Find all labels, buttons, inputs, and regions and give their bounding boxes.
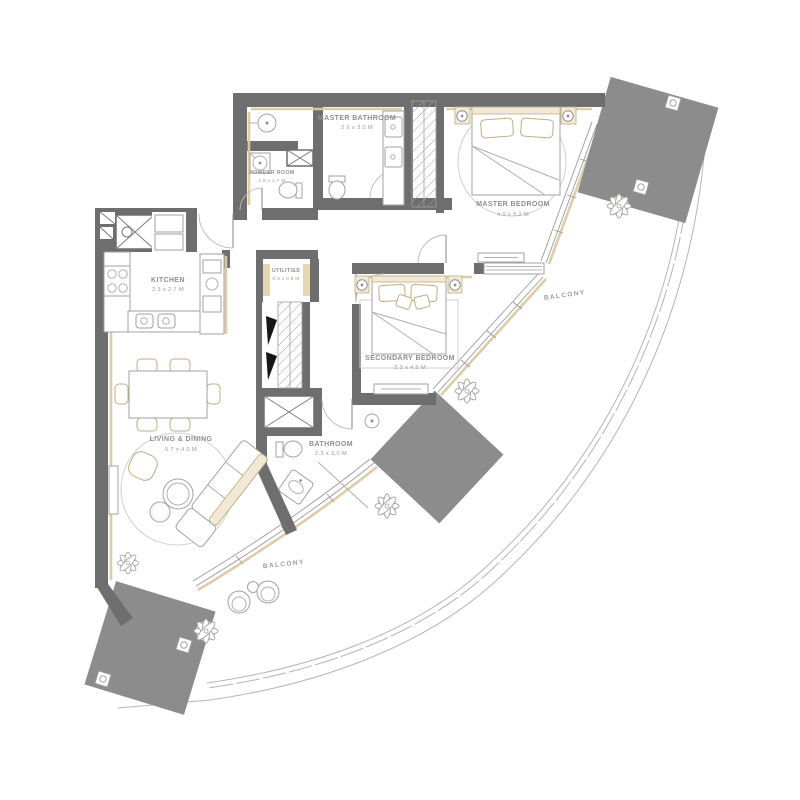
room-label-secondary-bedroom: SECONDARY BEDROOM <box>365 355 455 362</box>
room-dims-powder-room: 1.5 x 1.7 M <box>258 178 285 184</box>
lamp-icon <box>357 280 367 290</box>
balcony-chair-icon <box>228 591 250 613</box>
bathroom-door <box>322 399 352 429</box>
bed-icon <box>372 276 446 354</box>
room-label-utilities: UTILITIES <box>272 268 300 274</box>
room-label-balcony-bottom: BALCONY <box>263 559 305 570</box>
downlight-icon <box>633 179 649 195</box>
plant-icon <box>607 194 631 218</box>
sink-icon <box>158 314 175 328</box>
fridge-icon <box>155 215 183 232</box>
room-label-bathroom: BATHROOM <box>309 441 353 448</box>
plant-icon <box>194 619 218 643</box>
tv-console-icon <box>109 466 118 514</box>
toilet-icon <box>329 176 345 199</box>
lamp-icon <box>563 111 573 121</box>
floor-plan-page: MASTER BATHROOM 2.6 x 3.0 M POWDER ROOM … <box>0 0 800 800</box>
toilet-icon <box>279 182 302 198</box>
room-dims-bathroom: 2.3 x 3.0 M <box>315 451 347 457</box>
side-table-icon <box>150 502 170 522</box>
living-dining-furniture <box>109 359 270 548</box>
balcony-chair-icon <box>257 581 279 603</box>
washbasin-icon <box>278 469 314 505</box>
room-label-master-bathroom: MASTER BATHROOM <box>318 115 396 122</box>
toilet-icon <box>276 441 302 457</box>
downlight-icon <box>665 95 681 111</box>
floor-plan: MASTER BATHROOM 2.6 x 3.0 M POWDER ROOM … <box>0 0 800 800</box>
lamp-icon <box>457 111 467 121</box>
balcony-lounge <box>228 581 279 613</box>
balcony-slider <box>484 263 544 274</box>
master-bedroom-door <box>418 235 446 263</box>
sink-icon <box>136 314 153 328</box>
room-dims-master-bedroom: 4.0 x 5.2 M <box>497 212 529 218</box>
structural-column-bottom-left <box>84 581 215 715</box>
dining-set <box>115 359 220 431</box>
room-label-powder-room: POWDER ROOM <box>249 170 294 176</box>
entry-door <box>199 214 233 248</box>
plant-icon <box>117 552 139 574</box>
master-bathroom-fixtures <box>249 111 404 205</box>
plant-icon <box>455 379 479 403</box>
bed-icon <box>472 107 560 195</box>
room-dims-living-dining: 5.7 x 4.0 M <box>165 447 197 453</box>
room-label-master-bedroom: MASTER BEDROOM <box>476 201 550 208</box>
room-label-living-dining: LIVING & DINING <box>150 436 213 443</box>
lamp-icon <box>450 280 460 290</box>
room-dims-master-bathroom: 2.6 x 3.0 M <box>341 125 373 131</box>
secondary-bedroom-furniture <box>355 276 462 394</box>
dining-table-icon <box>129 371 207 418</box>
room-dims-kitchen: 2.3 x 2.7 M <box>152 287 184 293</box>
plant-icon <box>375 494 399 518</box>
room-dims-utilities: 0.9 x 0.8 M <box>272 276 299 282</box>
room-dims-secondary-bedroom: 3.3 x 4.5 M <box>394 365 426 371</box>
room-label-kitchen: KITCHEN <box>151 277 185 284</box>
room-label-balcony-right: BALCONY <box>544 289 587 302</box>
kitchen-fixtures <box>104 252 224 334</box>
armchair-icon <box>126 449 161 484</box>
